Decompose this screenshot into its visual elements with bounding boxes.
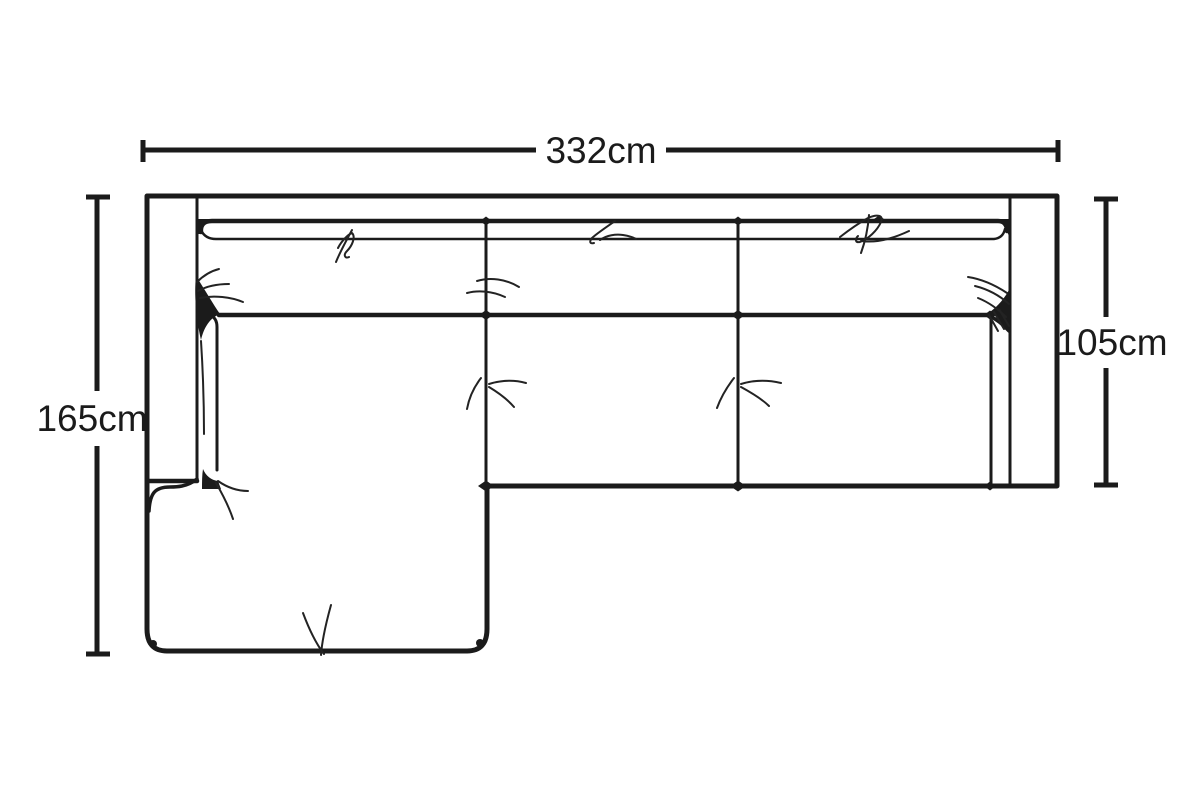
chaise-back-squiggle <box>336 230 354 262</box>
chaise-cushion-left-edge <box>210 315 217 470</box>
junction-diamond <box>479 310 493 320</box>
chaise-back-right-crease <box>467 279 519 297</box>
back-cushions-top-edge <box>201 221 1007 232</box>
junction-diamond <box>732 217 744 226</box>
junction-diamond <box>480 217 492 226</box>
left-gutter-crease <box>201 341 204 434</box>
left-depth-dimension: 165cm <box>36 197 147 654</box>
width-dimension-label: 332cm <box>545 130 656 171</box>
right-depth-dimension-label: 105cm <box>1056 322 1167 363</box>
junction-diamond <box>984 482 996 491</box>
left-depth-dimension-label: 165cm <box>36 398 147 439</box>
junction-diamond <box>730 481 746 492</box>
junction-diamond <box>478 481 494 492</box>
diagram-canvas: 332cm 165cm 105cm <box>0 0 1200 800</box>
right-depth-dimension: 105cm <box>1056 199 1167 485</box>
upholstery-creases <box>197 215 1009 655</box>
sofa-drawing <box>147 196 1057 655</box>
chaise-front-v-crease <box>303 605 331 655</box>
chaise-cushion-corner <box>149 479 197 511</box>
junction-diamond <box>731 310 745 320</box>
right-seat-crease <box>717 378 781 408</box>
corner-dot <box>149 640 157 648</box>
arm-junction-creases <box>216 481 248 519</box>
stitch-junctions <box>149 216 996 649</box>
left-back-corner-creases <box>197 269 243 302</box>
sofa-dimension-diagram: 332cm 165cm 105cm <box>0 0 1200 800</box>
corner-shading-wedges <box>195 219 1010 489</box>
sofa-outline <box>147 196 1057 651</box>
middle-seat-crease <box>467 378 526 409</box>
width-dimension: 332cm <box>143 130 1058 171</box>
corner-dot <box>476 639 484 647</box>
